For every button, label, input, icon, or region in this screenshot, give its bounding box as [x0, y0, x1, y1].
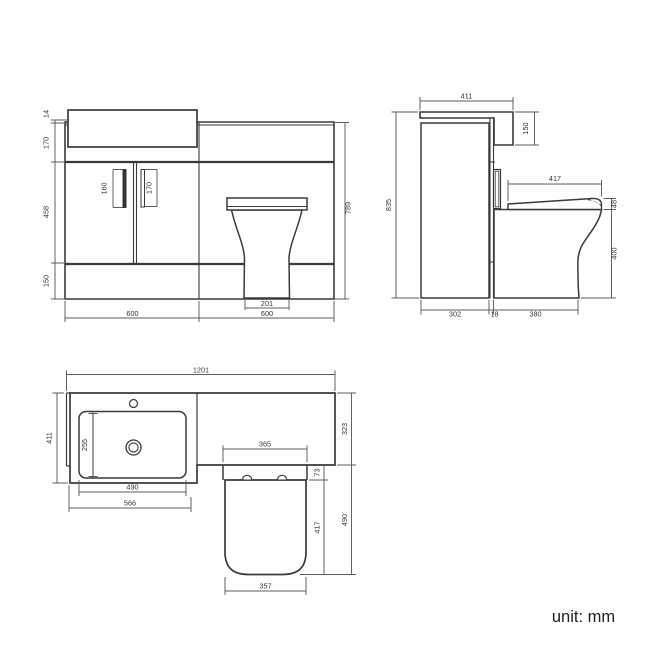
unit-label: unit: mm — [552, 608, 615, 626]
side-elevation-view: 411 150 835 417 48 400 302 18 380 — [384, 92, 619, 319]
front-countertop-thickness-label: 14 — [42, 110, 51, 118]
front-left-handle-length-label: 160 — [100, 182, 109, 194]
side-toilet-pan — [494, 210, 602, 299]
plan-tap-hole — [130, 400, 138, 408]
plan-seat-hinges — [243, 475, 287, 479]
front-dimension-lines — [51, 120, 349, 322]
plan-toilet-cistern-edges — [223, 465, 307, 480]
plan-view: 1201 411 255 490 566 365 73 417 490 323 … — [45, 366, 357, 596]
technical-drawing-page: 14 170 458 150 789 160 170 201 600 600 4… — [0, 0, 650, 650]
plan-overall-width-label: 1201 — [193, 366, 209, 375]
front-right-handle-length-label: 170 — [145, 182, 154, 194]
side-seat-depth-label: 417 — [549, 174, 561, 183]
plan-seat-depth-label: 417 — [313, 521, 322, 533]
plan-seat-setback-label: 73 — [313, 468, 322, 476]
side-pan-projection-label: 380 — [529, 310, 541, 319]
front-elevation-view: 14 170 458 150 789 160 170 201 600 600 — [42, 110, 353, 322]
side-gap-width-label: 18 — [490, 310, 498, 319]
plan-basin-inner-depth-label: 255 — [80, 439, 89, 451]
plan-basin — [79, 412, 186, 479]
side-countertop-profile — [420, 112, 513, 145]
side-pan-height-label: 400 — [610, 247, 619, 259]
plan-right-depth-label: 323 — [340, 423, 349, 435]
side-overall-height-label: 835 — [384, 199, 393, 211]
front-overall-height-label: 789 — [344, 202, 353, 214]
side-countertop-depth-label: 411 — [461, 92, 473, 101]
plan-toilet-seat — [225, 480, 306, 575]
plan-vanity-unit-width-label: 566 — [124, 499, 136, 508]
front-upper-section-height-label: 170 — [42, 137, 51, 149]
plan-seat-width-label: 357 — [259, 582, 271, 591]
side-toilet-seat — [508, 198, 602, 209]
front-toilet-seat — [227, 198, 307, 210]
front-toilet-base-width-label: 201 — [261, 299, 273, 308]
side-cabinet-depth-label: 302 — [449, 310, 461, 319]
front-plinth-height-label: 150 — [42, 275, 51, 287]
drawing-svg: 14 170 458 150 789 160 170 201 600 600 4… — [0, 0, 650, 650]
front-basin — [68, 110, 197, 147]
front-toilet-bowl — [232, 210, 303, 298]
side-basin-drop-label: 150 — [521, 122, 530, 134]
front-left-door-handle — [123, 169, 127, 208]
side-flush-panel — [494, 170, 501, 209]
plan-left-depth-label: 411 — [45, 432, 54, 444]
front-vanity-width-label: 600 — [126, 309, 138, 318]
front-wc-unit-width-label: 600 — [261, 309, 273, 318]
side-cabinet-outline — [421, 123, 489, 298]
plan-wc-width-label: 365 — [259, 440, 271, 449]
plan-wc-overall-depth-label: 490 — [340, 514, 349, 526]
front-door-height-label: 458 — [42, 206, 51, 218]
side-seat-thickness-label: 48 — [610, 200, 619, 208]
plan-basin-width-label: 490 — [126, 483, 138, 492]
